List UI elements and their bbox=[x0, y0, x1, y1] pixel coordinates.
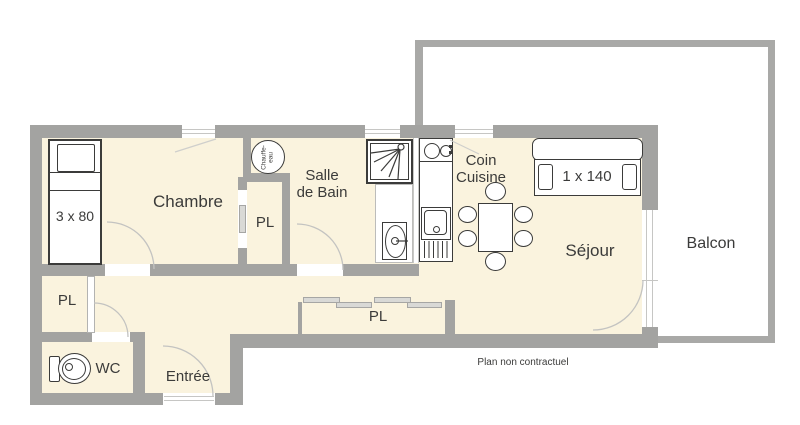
room-label-sejour: Séjour bbox=[550, 241, 630, 260]
room-label-chambre: Chambre bbox=[128, 192, 248, 211]
closet-label-hall-left: PL bbox=[47, 293, 87, 310]
water-heater-label: Chauffe-eau bbox=[261, 142, 276, 172]
footnote: Plan non contractuel bbox=[423, 357, 623, 368]
single-bed-label: 3 x 80 bbox=[50, 209, 100, 225]
room-label-coin-cuisine: Coin Cuisine bbox=[452, 153, 510, 187]
wall-step bbox=[230, 334, 243, 405]
room-label-wc: WC bbox=[88, 361, 128, 378]
sink-icon bbox=[421, 207, 451, 240]
room-label-balcon: Balcon bbox=[671, 235, 751, 253]
wall-left bbox=[30, 125, 42, 405]
closet-label-chambre: PL bbox=[245, 215, 285, 232]
balcony-wall-top bbox=[415, 40, 775, 47]
wall-top-1 bbox=[30, 125, 182, 138]
window-chambre bbox=[182, 125, 215, 138]
wall-heater-nook-bottom bbox=[247, 173, 287, 182]
balcony-wall-right bbox=[768, 40, 775, 343]
wall-top-3 bbox=[400, 125, 455, 138]
floor-plan: 3 x 80 1 x 140 bbox=[0, 0, 800, 425]
pillow-icon bbox=[57, 144, 95, 172]
chair bbox=[514, 230, 533, 247]
chair bbox=[514, 206, 533, 223]
wall-hall-closet-left bbox=[298, 302, 302, 336]
balcony-wall-left bbox=[415, 40, 423, 125]
tap-icon bbox=[391, 237, 399, 245]
wall-wc-right bbox=[133, 332, 145, 405]
closet-label-hall-bottom: PL bbox=[358, 309, 398, 326]
sliding-door-panel bbox=[336, 302, 372, 308]
hall-closet-partition bbox=[87, 276, 95, 333]
chair bbox=[485, 252, 506, 271]
single-bed: 3 x 80 bbox=[48, 139, 102, 265]
wall-wc-top-1 bbox=[42, 332, 92, 342]
wall-corridor-1 bbox=[42, 264, 105, 276]
kitchen-unit bbox=[419, 138, 453, 262]
wall-right-lower bbox=[642, 327, 658, 348]
wall-corridor-2 bbox=[150, 264, 297, 276]
wall-hall-closet-right bbox=[445, 300, 455, 336]
double-bed-label: 1 x 140 bbox=[552, 169, 622, 186]
shower-icon bbox=[366, 139, 413, 184]
sliding-door-panel bbox=[374, 297, 411, 303]
wall-bottom-right bbox=[243, 334, 658, 348]
room-label-entree: Entrée bbox=[148, 369, 228, 386]
entry-door-threshold bbox=[163, 393, 215, 405]
room-label-salle-de-bain: Salle de Bain bbox=[292, 168, 352, 202]
toilet-bowl bbox=[58, 353, 91, 384]
dining-table bbox=[478, 203, 513, 252]
window-bathroom bbox=[365, 125, 400, 138]
chair bbox=[458, 230, 477, 247]
sliding-door-panel bbox=[407, 302, 442, 308]
door-gap-bathroom bbox=[297, 264, 343, 276]
door-gap-wc bbox=[92, 332, 130, 342]
drainboard-icon bbox=[424, 241, 450, 258]
wall-corridor-3 bbox=[343, 264, 419, 276]
water-heater-icon: Chauffe-eau bbox=[251, 140, 285, 174]
sliding-door-panel bbox=[303, 297, 340, 303]
door-gap-chambre bbox=[105, 264, 150, 276]
pillow-icon bbox=[622, 164, 637, 190]
wall-top-4 bbox=[493, 125, 658, 138]
balcony-wall-bottom bbox=[658, 336, 775, 343]
window-kitchen bbox=[455, 125, 493, 138]
pillow-icon bbox=[538, 164, 553, 190]
stove-icon bbox=[420, 139, 452, 162]
balcony-door-window bbox=[642, 210, 658, 327]
wall-right-upper bbox=[642, 125, 658, 210]
wall-top-2 bbox=[215, 125, 365, 138]
chair bbox=[458, 206, 477, 223]
wall-heater-nook-stub bbox=[243, 135, 251, 177]
double-bed-headboard bbox=[532, 138, 643, 161]
